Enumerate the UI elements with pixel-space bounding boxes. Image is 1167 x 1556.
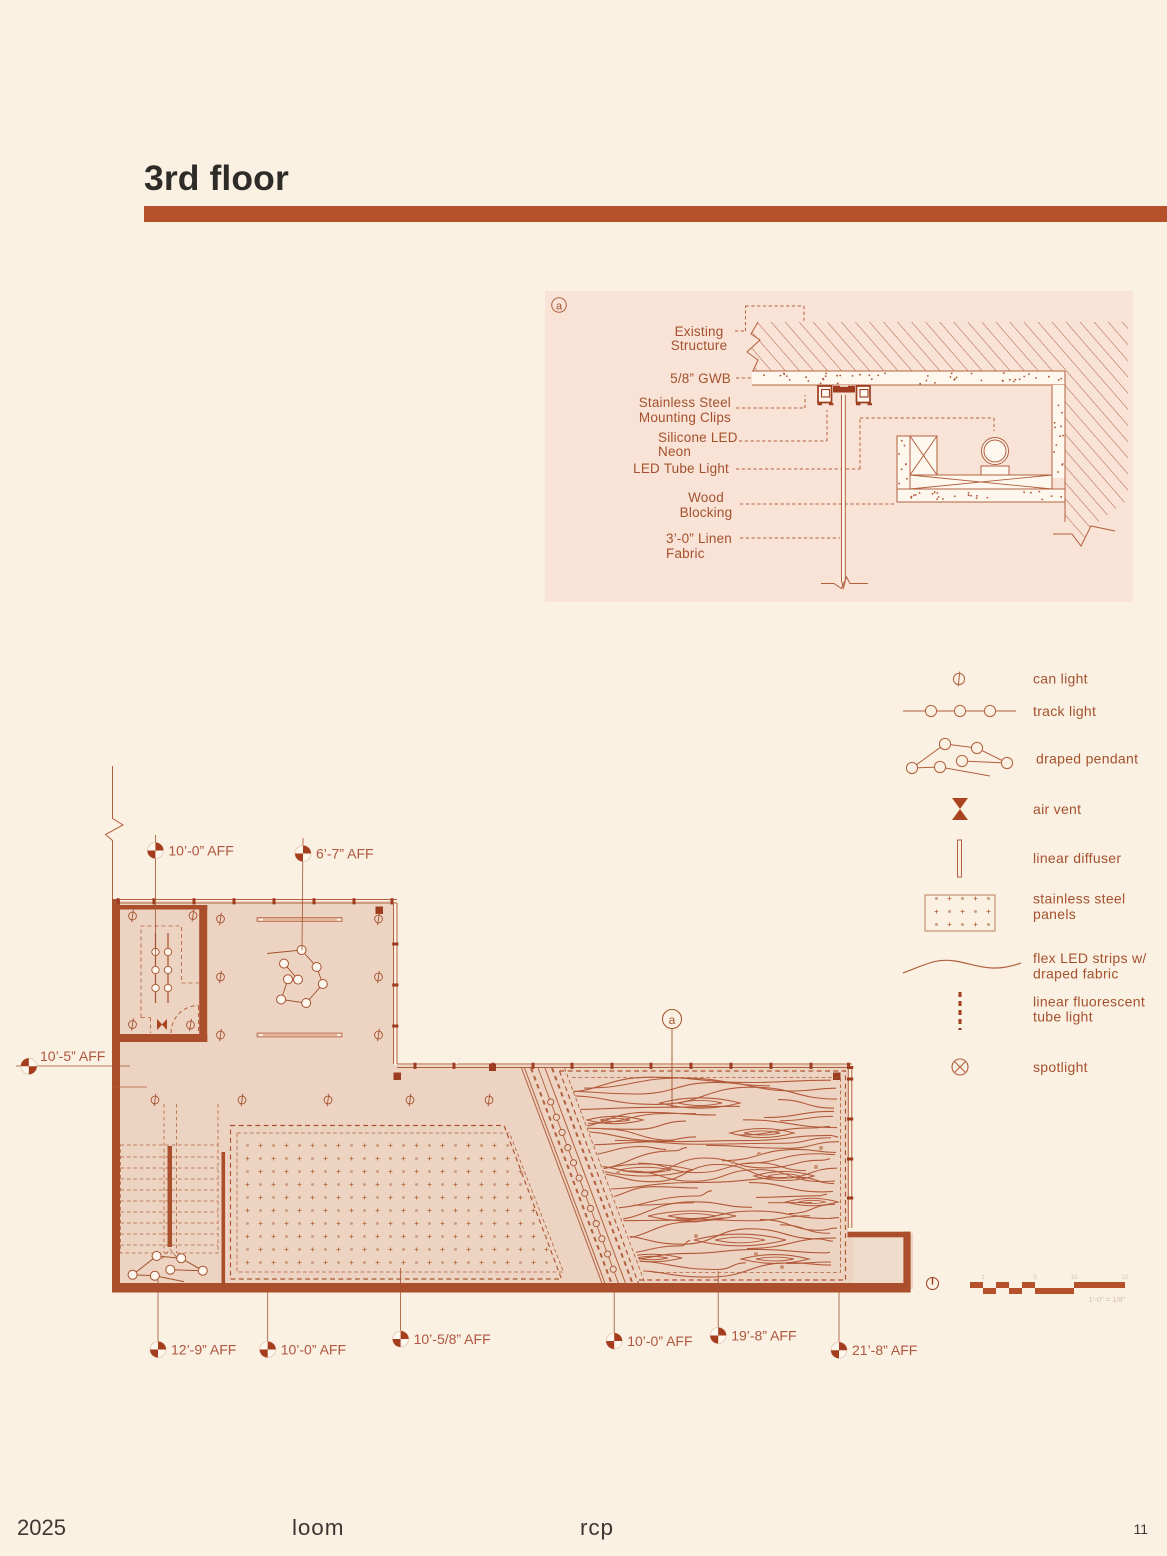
svg-text:19’-8” AFF: 19’-8” AFF — [731, 1328, 796, 1344]
svg-text:10: 10 — [1070, 1274, 1078, 1281]
svg-text:track light: track light — [1033, 703, 1096, 719]
svg-text:a: a — [669, 1013, 676, 1027]
svg-text:Blocking: Blocking — [680, 505, 733, 520]
svg-text:1’-0” = 1/8”: 1’-0” = 1/8” — [1089, 1295, 1126, 1304]
svg-text:draped pendant: draped pendant — [1036, 751, 1138, 767]
svg-text:5/8” GWB: 5/8” GWB — [670, 371, 731, 386]
svg-text:10’-0” AFF: 10’-0” AFF — [627, 1333, 692, 1349]
svg-text:tube light: tube light — [1033, 1009, 1093, 1025]
svg-text:21’-8” AFF: 21’-8” AFF — [852, 1342, 917, 1358]
svg-text:Mounting Clips: Mounting Clips — [639, 410, 731, 425]
svg-text:12’-9” AFF: 12’-9” AFF — [171, 1342, 236, 1358]
svg-text:stainless steel: stainless steel — [1033, 891, 1125, 907]
svg-text:10’-0” AFF: 10’-0” AFF — [168, 843, 233, 859]
svg-text:loom: loom — [292, 1515, 344, 1540]
svg-text:10’-5/8” AFF: 10’-5/8” AFF — [414, 1331, 491, 1347]
svg-text:11: 11 — [1133, 1521, 1148, 1537]
svg-text:10’-0” AFF: 10’-0” AFF — [281, 1342, 346, 1358]
svg-text:flex LED strips w/: flex LED strips w/ — [1033, 950, 1147, 966]
svg-text:5: 5 — [1033, 1274, 1037, 1281]
svg-text:Wood: Wood — [688, 490, 724, 505]
svg-text:Existing: Existing — [675, 324, 724, 339]
svg-text:Silicone LED: Silicone LED — [658, 430, 738, 445]
svg-text:3rd floor: 3rd floor — [144, 158, 289, 198]
svg-text:3’-0” Linen: 3’-0” Linen — [666, 531, 732, 546]
svg-text:spotlight: spotlight — [1033, 1059, 1088, 1075]
svg-text:2025: 2025 — [17, 1515, 66, 1540]
svg-text:1: 1 — [981, 1274, 985, 1281]
svg-text:LED Tube Light: LED Tube Light — [633, 461, 729, 476]
svg-text:a: a — [556, 301, 563, 313]
svg-text:Neon: Neon — [658, 444, 691, 459]
svg-text:6’-7” AFF: 6’-7” AFF — [316, 846, 374, 862]
svg-text:linear fluorescent: linear fluorescent — [1033, 994, 1145, 1010]
svg-text:10’-5” AFF: 10’-5” AFF — [40, 1048, 105, 1064]
svg-text:draped fabric: draped fabric — [1033, 966, 1119, 982]
svg-text:Structure: Structure — [671, 338, 728, 353]
svg-text:Stainless Steel: Stainless Steel — [639, 395, 731, 410]
svg-text:can light: can light — [1033, 671, 1088, 687]
svg-text:air vent: air vent — [1033, 801, 1081, 817]
svg-text:panels: panels — [1033, 906, 1076, 922]
svg-text:rcp: rcp — [580, 1515, 614, 1540]
svg-text:Fabric: Fabric — [666, 546, 705, 561]
svg-text:linear diffuser: linear diffuser — [1033, 850, 1121, 866]
svg-text:15: 15 — [1121, 1274, 1129, 1281]
